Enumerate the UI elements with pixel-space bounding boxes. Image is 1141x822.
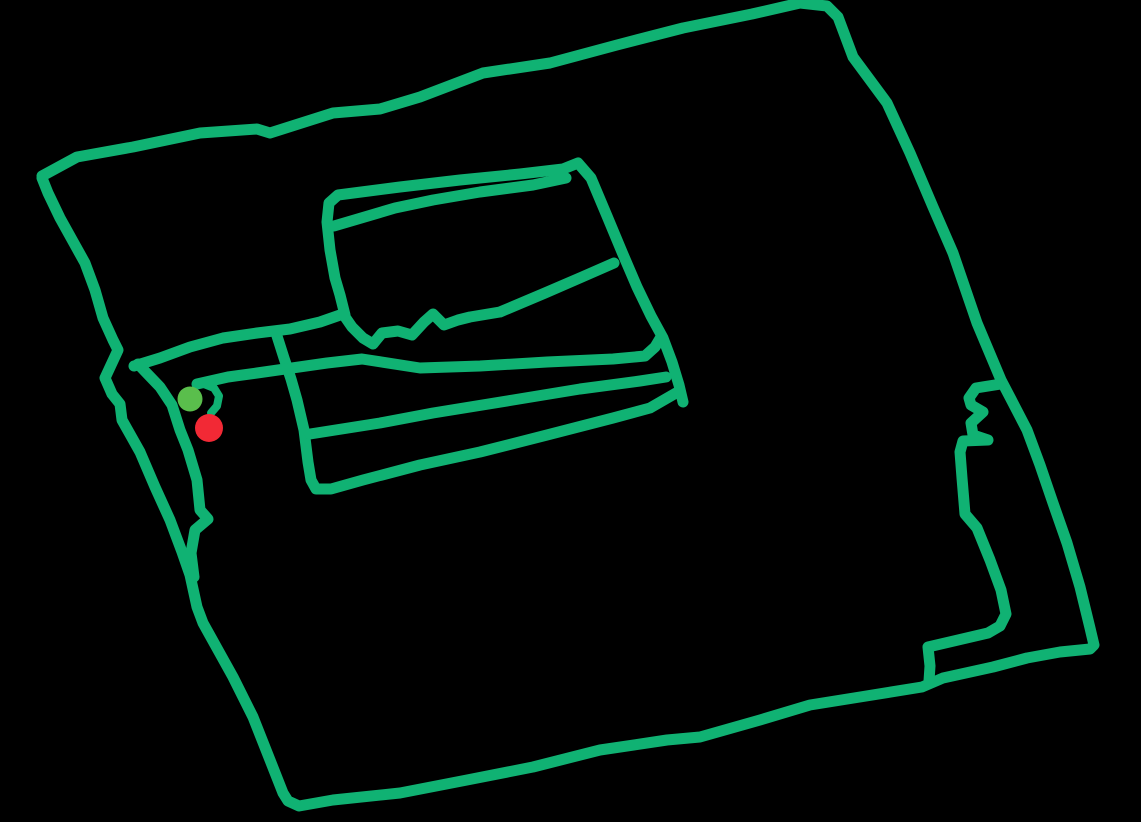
marker-hook-stroke	[204, 384, 219, 413]
field-stripe-line-stroke	[310, 377, 666, 434]
road-and-middle-stripe-stroke	[134, 263, 614, 366]
end-marker-red-dot	[195, 414, 223, 442]
drawing-canvas[interactable]	[0, 0, 1141, 822]
start-marker-green-dot	[178, 387, 203, 412]
lower-road-stripe-stroke	[197, 337, 661, 384]
sketch-svg	[0, 0, 1141, 822]
right-step-shape-stroke	[928, 384, 1006, 681]
